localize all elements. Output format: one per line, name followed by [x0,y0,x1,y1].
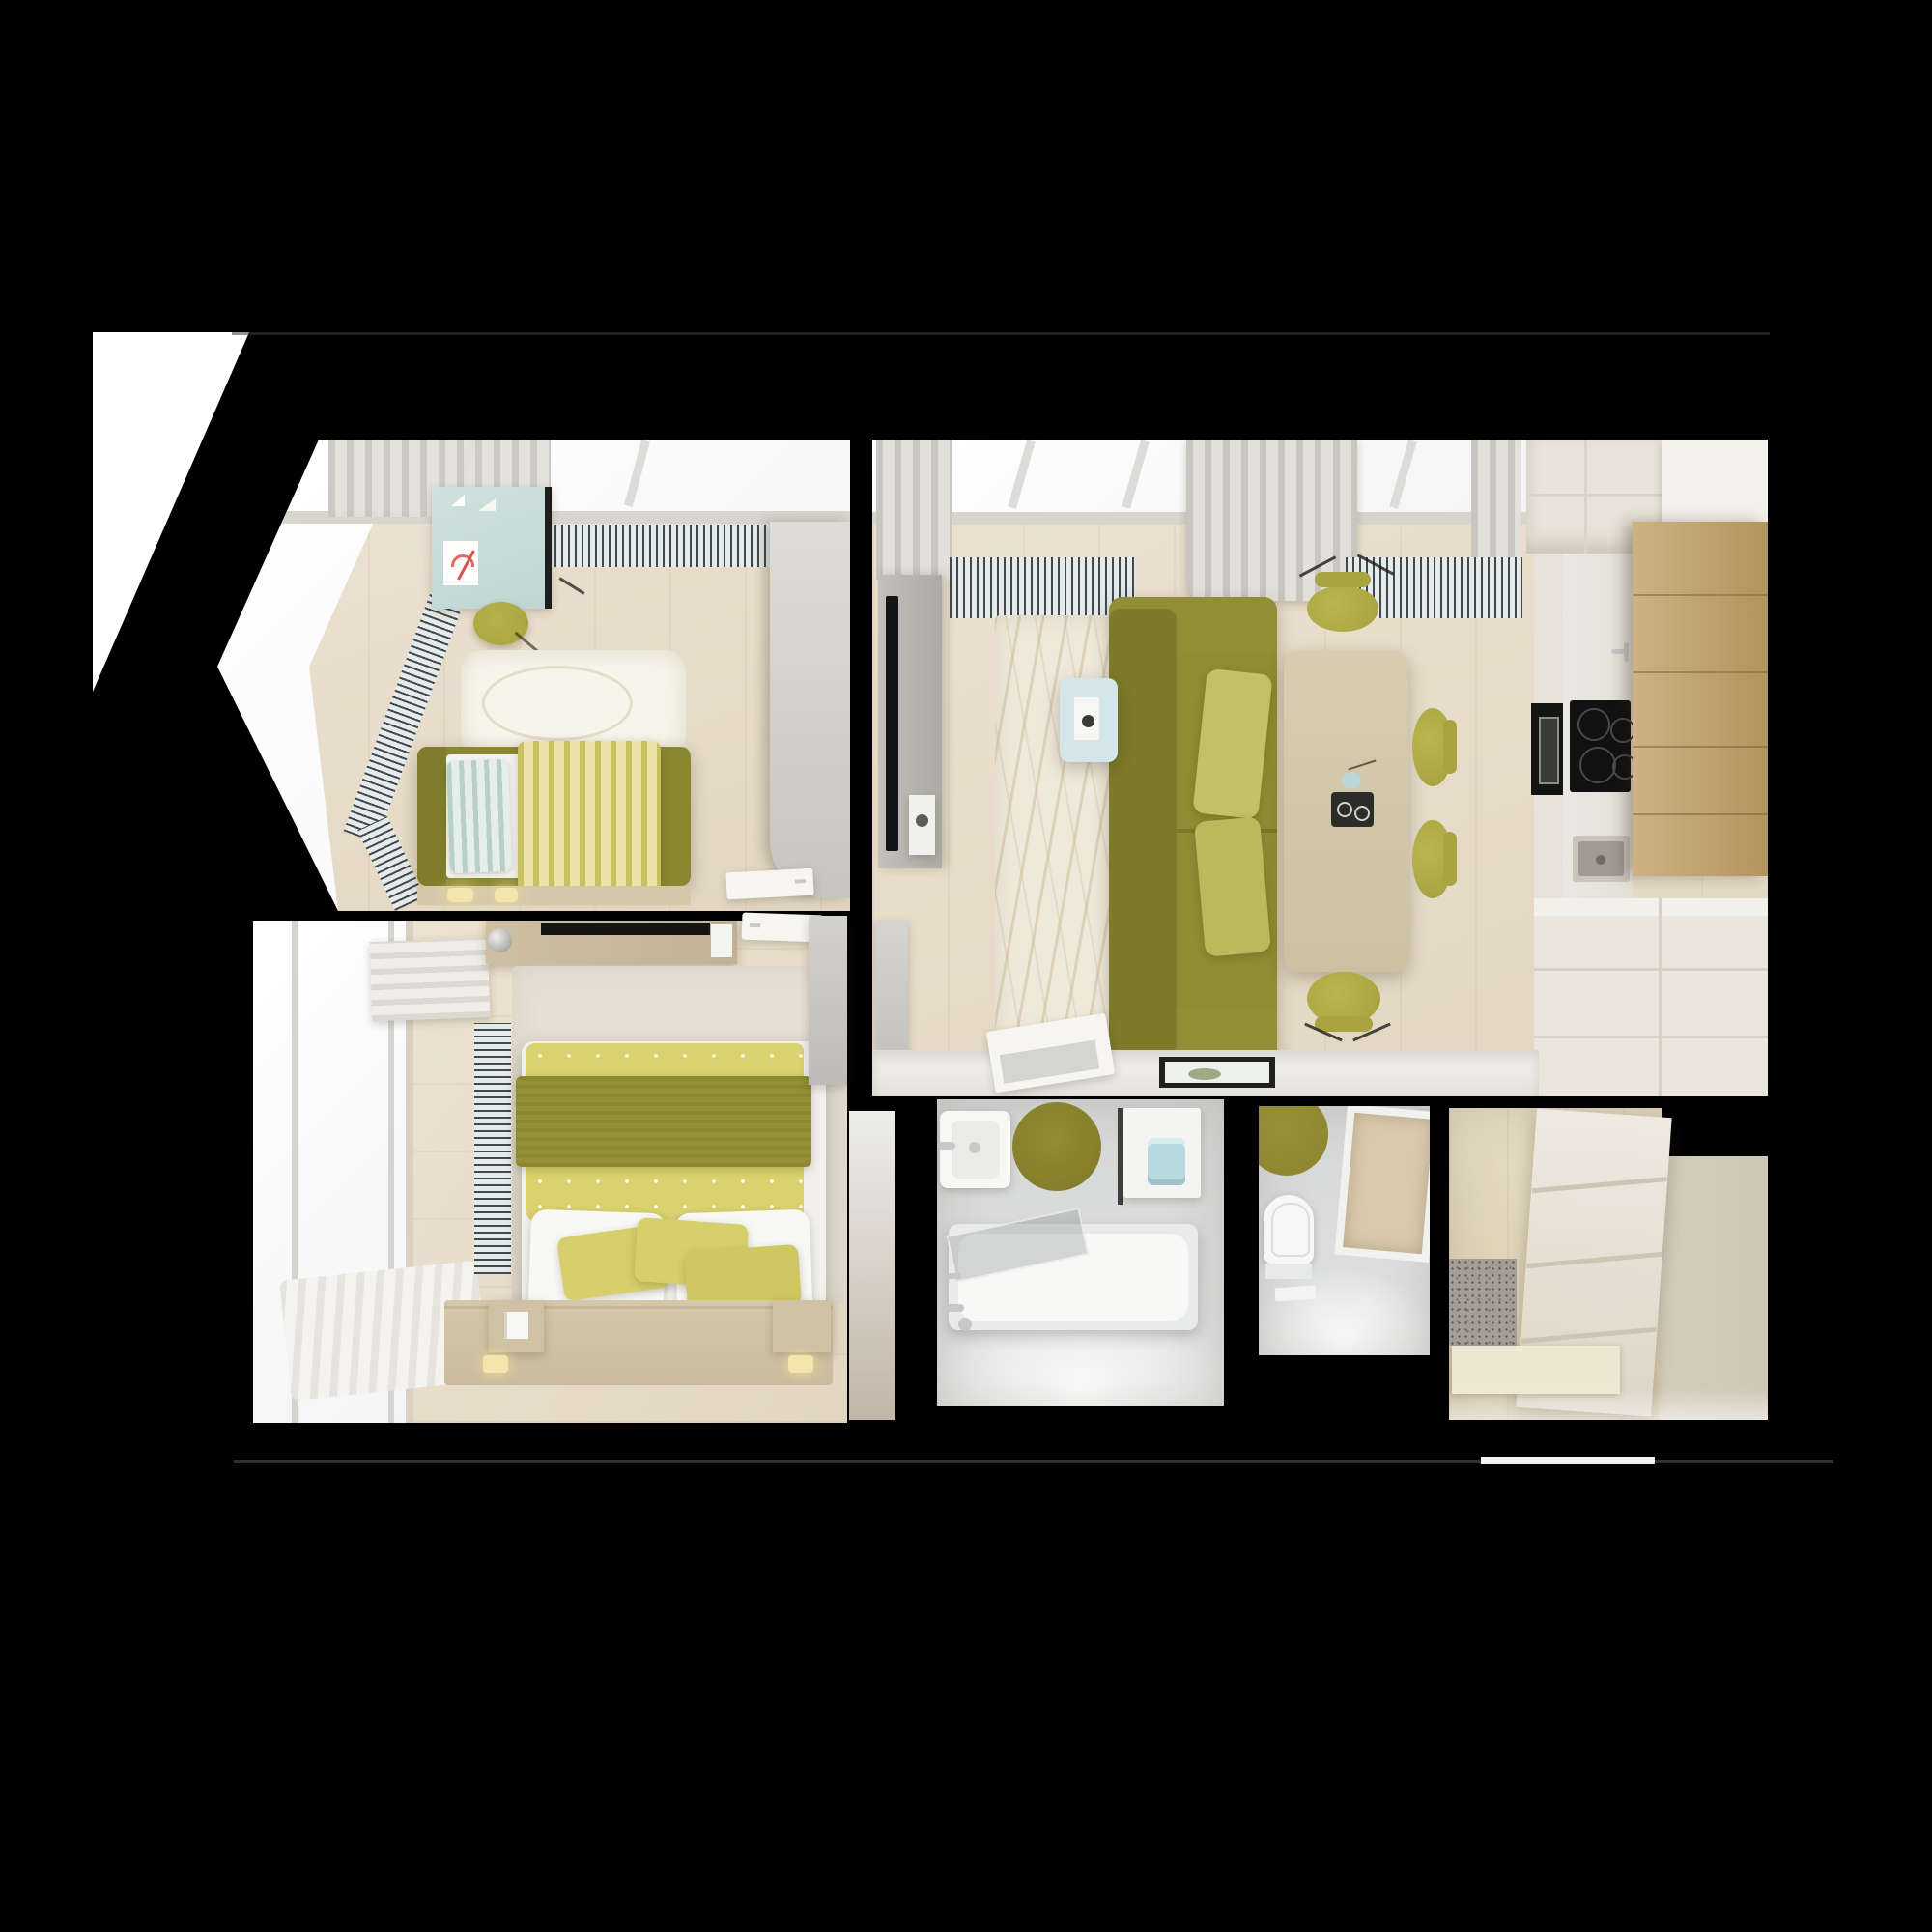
sofa-pillow [1192,668,1272,819]
poster [909,795,935,855]
hallway [1449,1108,1768,1420]
speckled-doormat [1449,1259,1517,1346]
cabinet-seam [1534,1036,1768,1038]
bathroom [937,1099,1224,1406]
dining-chair-back [1315,1016,1373,1032]
living-radiator-left [950,557,1135,618]
sofa-pillow [1194,816,1271,956]
blue-towel [1148,1138,1185,1185]
wall-face-strip [849,1111,895,1420]
roman-blind [370,938,491,1021]
kitchen-faucet-icon [1624,642,1629,662]
toilet [1264,1195,1314,1265]
cabinet-seam [1526,494,1662,497]
dining-chair-back [1443,720,1457,774]
cabinet-seam [1584,440,1587,554]
cooktop-burner [1577,708,1610,741]
floor-glow [1449,1388,1768,1420]
sink-drain-icon [1596,855,1605,865]
floor-paper [1275,1286,1317,1302]
dining-table [1284,650,1408,972]
kids-bed-headboard [417,747,446,886]
nightstand [773,1300,831,1352]
desk-papers [711,924,732,957]
cup-icon [1082,715,1094,727]
kids-bed-pillow [446,759,512,873]
outer-wall-top-edge [232,332,1770,335]
floor-board [1452,1346,1620,1394]
door-handle-icon [795,879,806,884]
picture-frame [1159,1057,1275,1088]
kids-bed [417,747,691,886]
toilet-tank [1265,1264,1312,1279]
cabinet-seam [1534,968,1768,971]
paper-plane-icon [451,495,465,506]
picture-art-leaf-icon [1188,1068,1221,1080]
sofa [1109,597,1277,1067]
nightstand [489,1300,544,1352]
platform-lamp-icon [788,1355,813,1373]
toilet-room [1259,1106,1430,1355]
tub-faucet-icon [942,1273,961,1279]
kids-desk [432,487,552,609]
floorplan-render [0,0,1932,1932]
wall-notch [1662,1108,1768,1156]
exterior-ground [93,332,249,692]
bedroom [253,921,847,1423]
kids-room-door [725,868,813,900]
door-glass [1000,1040,1099,1084]
tv [886,596,898,851]
dining-chair [1307,585,1378,632]
glass-icon [1354,806,1370,821]
washbasin [940,1111,1010,1188]
drawer-seam [1526,1252,1662,1268]
bedroom-wardrobe-door [809,916,847,1085]
kids-radiator-top [541,525,770,567]
cabinet-seam [1633,671,1768,673]
bear-outline-icon [482,666,633,741]
tall-wood-cabinet [1633,522,1768,876]
toilet-seat [1271,1203,1310,1257]
washing-machine [1123,1108,1201,1198]
tub-faucet-icon [941,1304,964,1312]
poster-art-icon [916,814,928,827]
tv-panel [878,575,942,868]
dining-chair-back [1315,572,1371,587]
side-table [1060,678,1118,762]
living-room [872,440,1768,1096]
serving-tray [1331,792,1374,827]
bed-platform [444,1300,833,1385]
bedside-lamp-icon [495,888,518,902]
cabinet-seam [1659,898,1662,1096]
kids-column [770,522,850,898]
cabinet-seam [1633,746,1768,748]
desk-mat [541,923,710,935]
desk-frame [545,487,552,609]
kitchen-corner-cabinet [1662,440,1768,523]
sofa-backrest [1109,609,1177,1056]
paper-plane-icon [478,498,496,511]
drawer-seam [1532,1177,1667,1193]
basin-drain-icon [969,1142,980,1153]
twig-icon [1348,759,1376,770]
bedroom-radiator [474,1023,511,1274]
glass-icon [1337,802,1352,817]
desk-lamp-icon [488,928,512,952]
living-curtain-left [876,440,952,580]
shower-head-icon [958,1318,972,1331]
drawer-seam [1521,1327,1657,1344]
cabinet-seam [1633,813,1768,815]
olive-blanket [516,1076,811,1167]
kitchen-lower-cabinets [1534,898,1768,1096]
cabinet-seam [1633,594,1768,596]
platform-lamp-icon [483,1355,508,1373]
door-handle-icon [750,923,760,927]
kids-drawing [443,541,478,585]
vase-icon [1342,772,1361,789]
counter-edge [1534,898,1768,916]
bathroom-rug [1012,1102,1101,1191]
kids-bed-blanket [518,741,661,893]
book [504,1312,528,1339]
oven-door [1539,717,1559,784]
toilet-rug [1259,1106,1328,1176]
cooktop [1570,700,1631,792]
cooktop-burner [1579,747,1616,783]
dining-chair-back [1443,832,1457,886]
wardrobe-side [1659,1156,1768,1420]
kids-room [217,440,850,911]
kitchen-sink [1573,836,1630,882]
bedside-lamp-icon [447,888,473,902]
niche-shelf [1334,1106,1430,1263]
vanity-desk [486,921,737,964]
basin-faucet-icon [938,1142,955,1150]
entry-door [1481,1457,1655,1464]
built-in-oven [1531,703,1563,795]
